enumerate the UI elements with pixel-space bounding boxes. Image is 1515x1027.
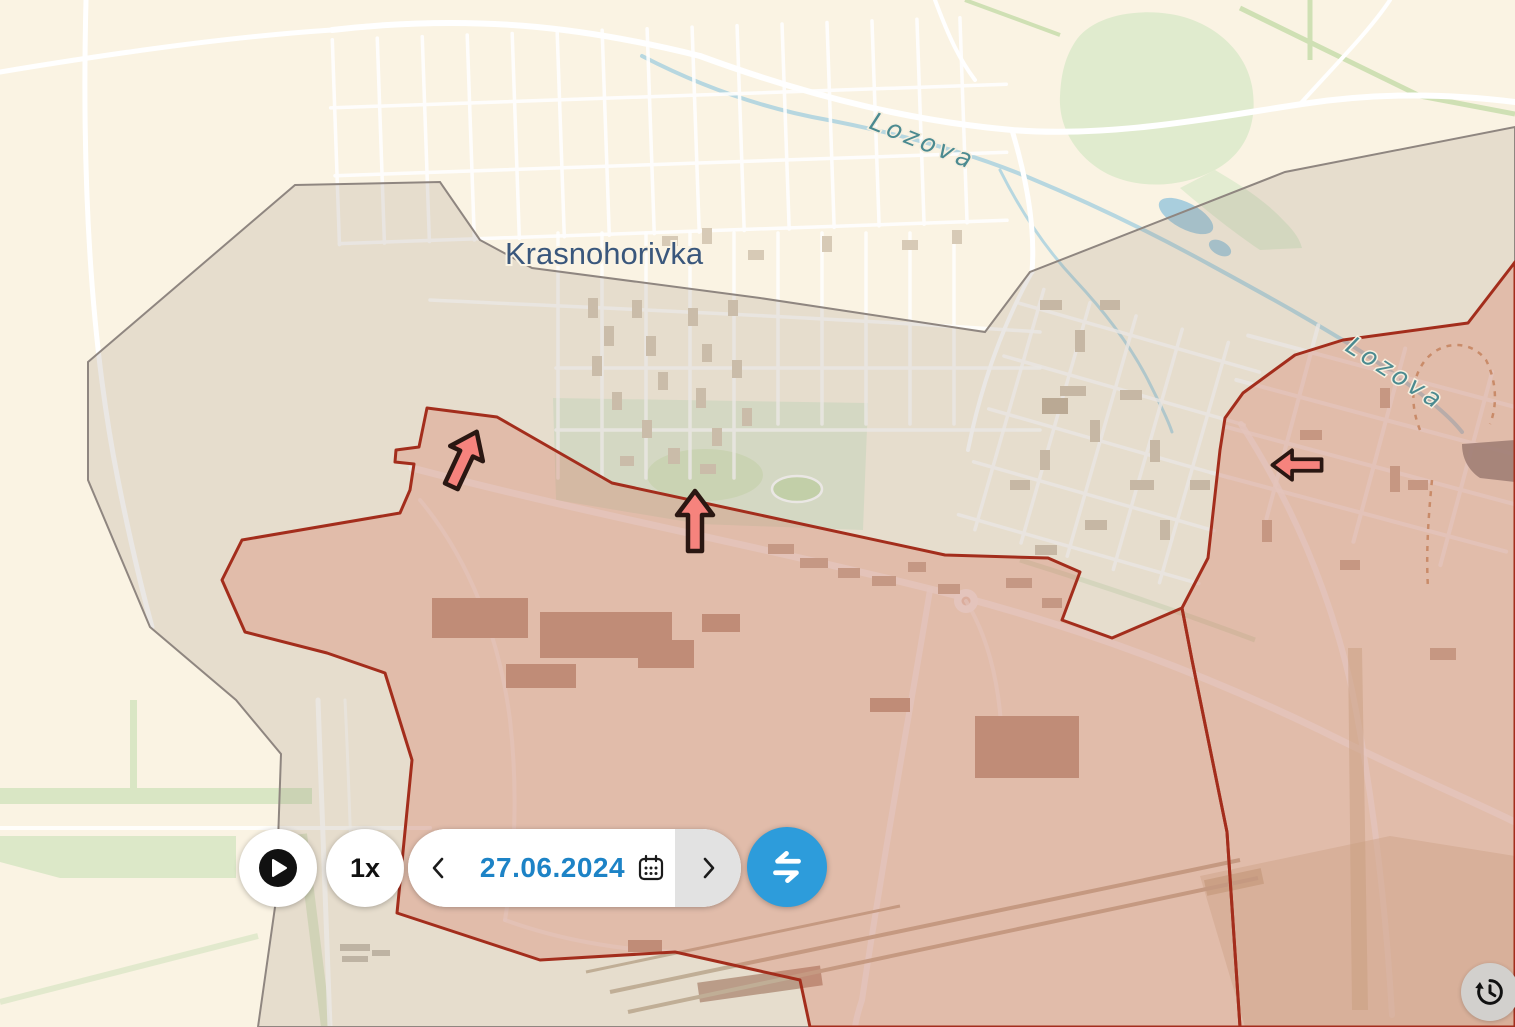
history-clock-icon xyxy=(1473,975,1507,1009)
date-value: 27.06.2024 xyxy=(480,852,625,884)
play-button[interactable] xyxy=(239,829,317,907)
play-icon xyxy=(257,847,299,889)
map-app: Krasnohorivka Lozova Lozova 1x 27.06.202… xyxy=(0,0,1515,1027)
chevron-left-icon xyxy=(428,855,450,881)
history-button[interactable] xyxy=(1461,963,1515,1021)
playback-speed-label: 1x xyxy=(350,853,380,884)
date-picker: 27.06.2024 xyxy=(408,829,741,907)
compare-dates-button[interactable] xyxy=(747,827,827,907)
chevron-right-icon xyxy=(697,855,719,881)
calendar-icon xyxy=(637,854,665,882)
swap-arrows-icon xyxy=(764,844,810,890)
playback-speed-button[interactable]: 1x xyxy=(326,829,404,907)
date-button[interactable]: 27.06.2024 xyxy=(470,829,675,907)
city-label: Krasnohorivka xyxy=(505,236,704,271)
